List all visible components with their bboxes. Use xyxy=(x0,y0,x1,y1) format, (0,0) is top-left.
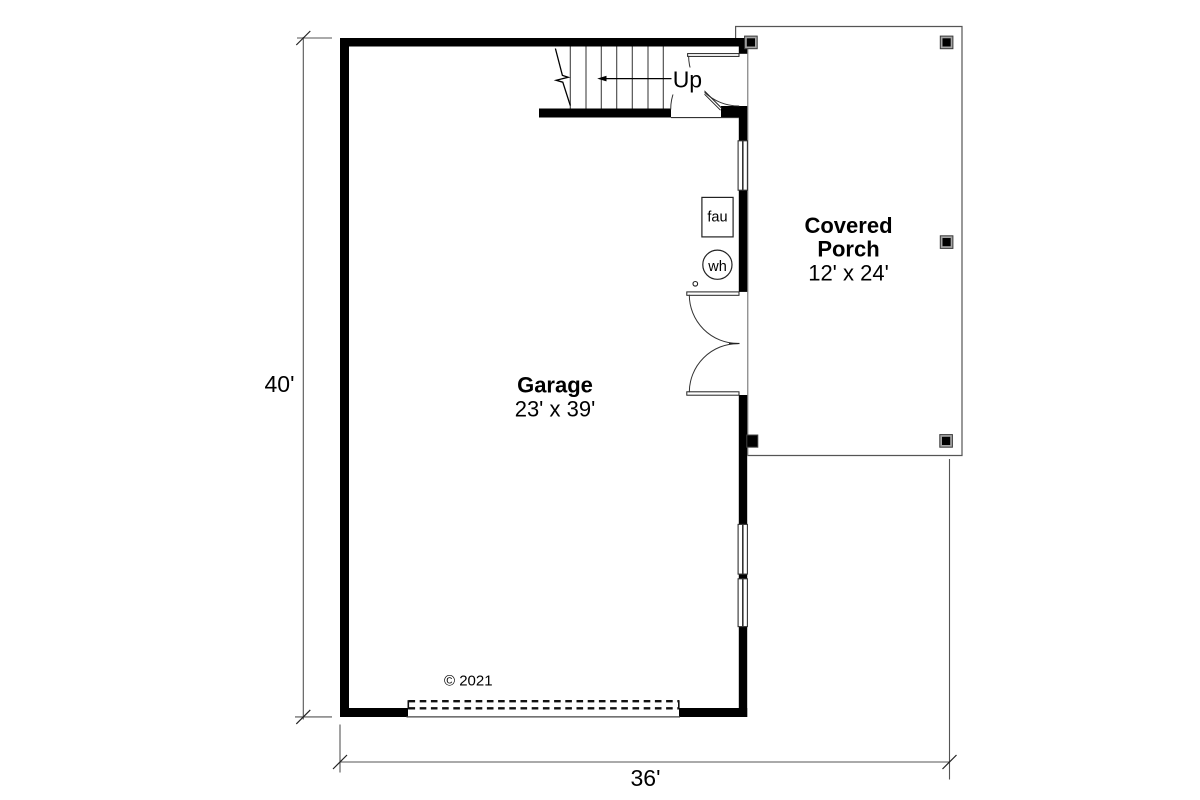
svg-text:36': 36' xyxy=(631,765,661,791)
svg-text:wh: wh xyxy=(707,259,727,275)
svg-text:Up: Up xyxy=(673,67,702,93)
svg-text:Garage: Garage xyxy=(517,373,593,398)
svg-text:Covered: Covered xyxy=(804,213,892,238)
svg-text:© 2021: © 2021 xyxy=(444,673,493,690)
svg-text:23' x 39': 23' x 39' xyxy=(515,397,596,422)
svg-text:Porch: Porch xyxy=(817,237,879,262)
svg-text:40': 40' xyxy=(265,371,295,397)
svg-text:fau: fau xyxy=(707,210,727,226)
svg-text:12' x 24': 12' x 24' xyxy=(808,261,889,286)
